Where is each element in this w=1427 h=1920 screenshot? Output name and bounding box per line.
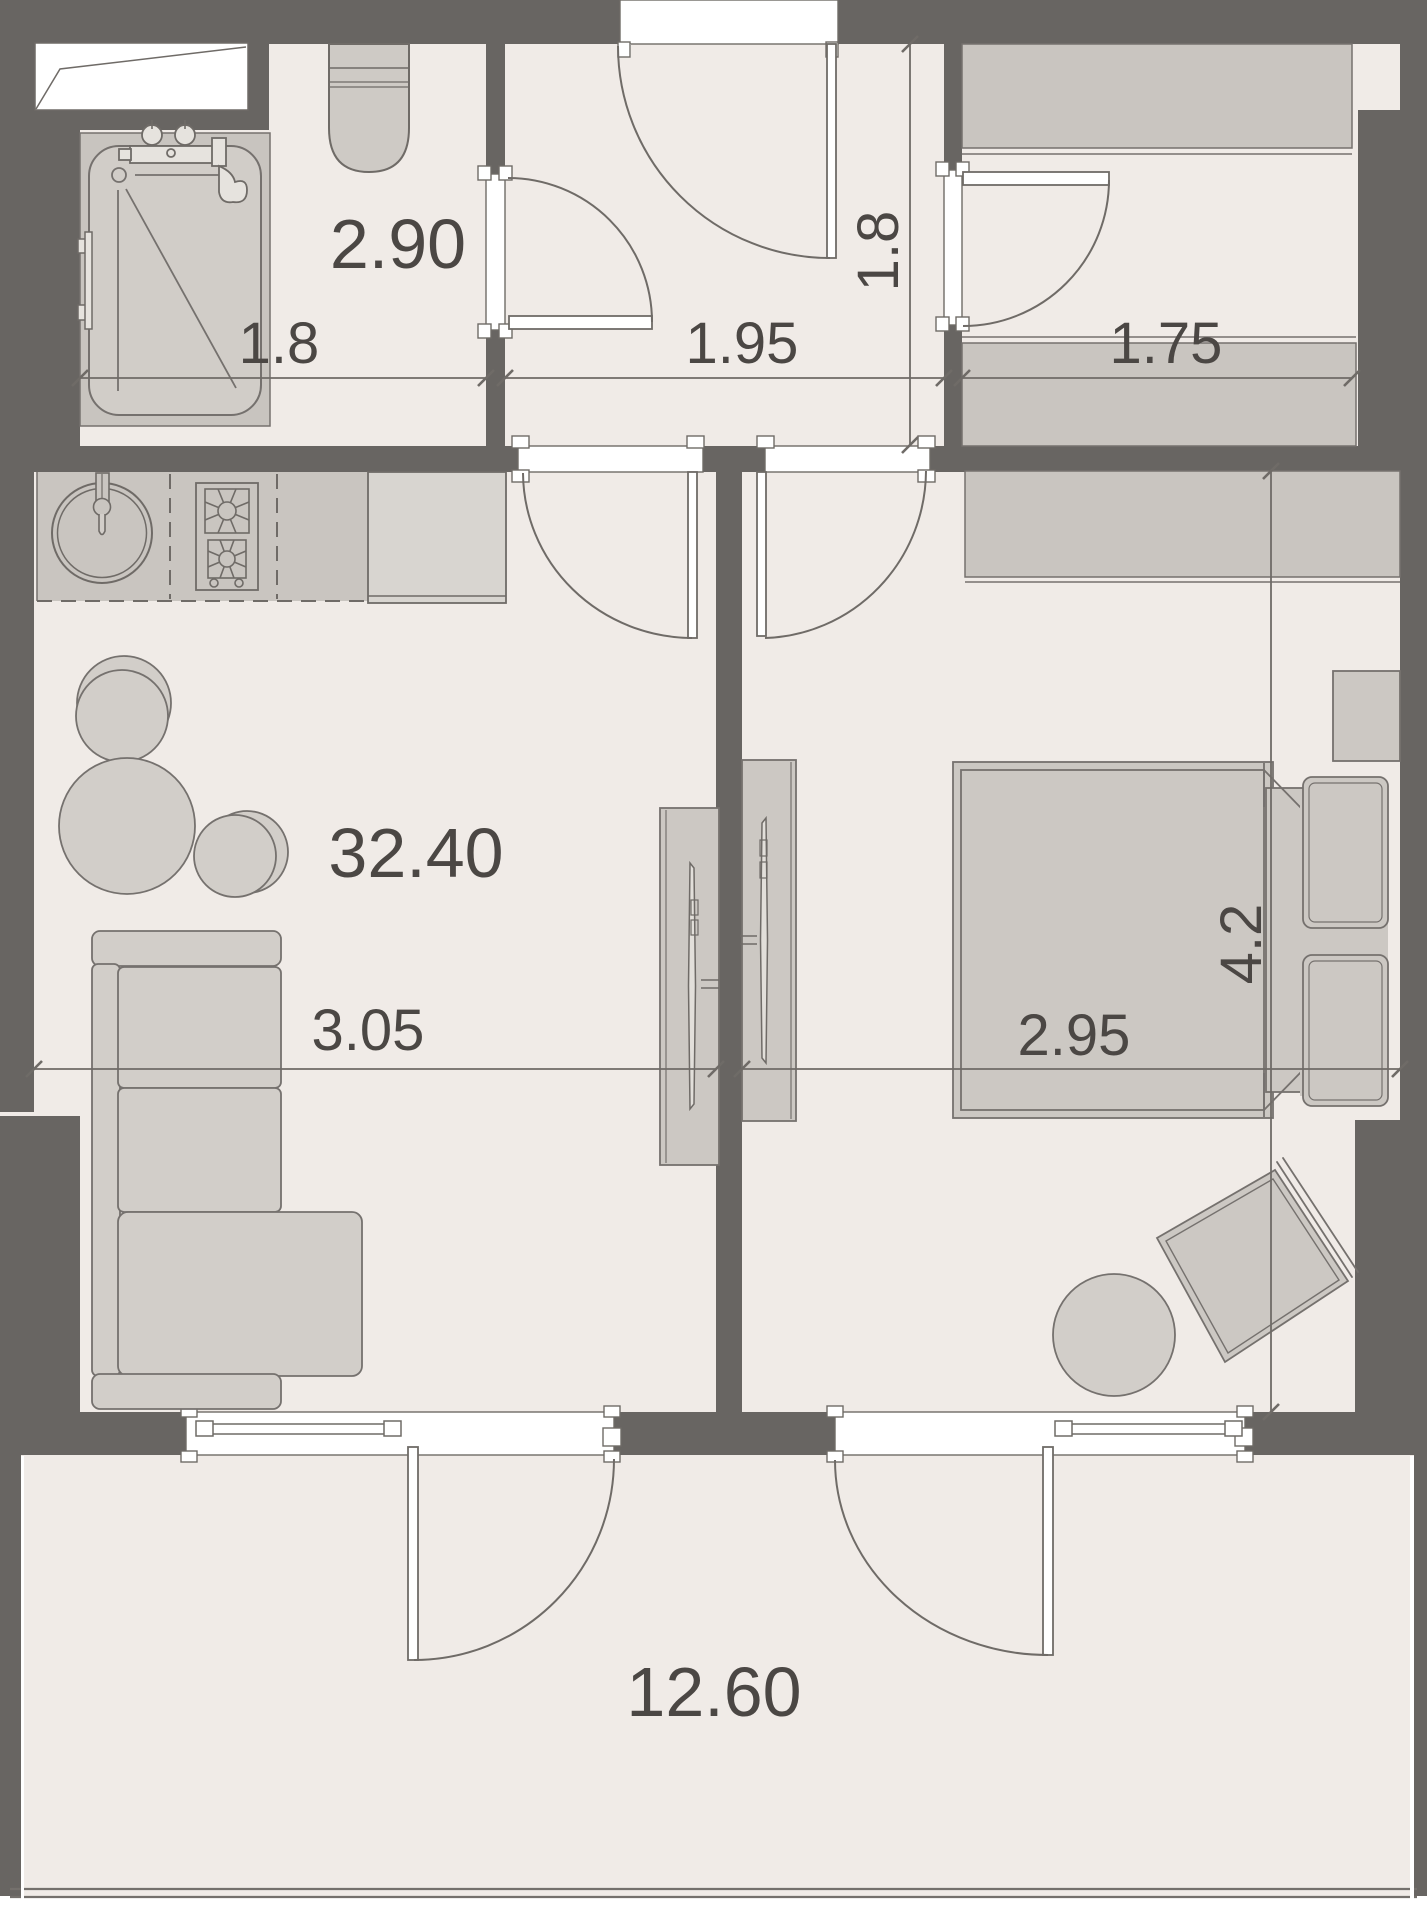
svg-text:1.95: 1.95 [686,311,799,376]
svg-text:32.40: 32.40 [328,814,503,892]
svg-text:1.8: 1.8 [846,211,911,292]
svg-text:1.75: 1.75 [1110,311,1223,376]
svg-text:2.95: 2.95 [1018,1003,1131,1068]
svg-text:3.05: 3.05 [312,998,425,1063]
svg-text:12.60: 12.60 [626,1653,801,1731]
svg-text:2.90: 2.90 [330,205,466,283]
svg-text:1.8: 1.8 [239,311,320,376]
svg-text:4.2: 4.2 [1209,904,1274,985]
